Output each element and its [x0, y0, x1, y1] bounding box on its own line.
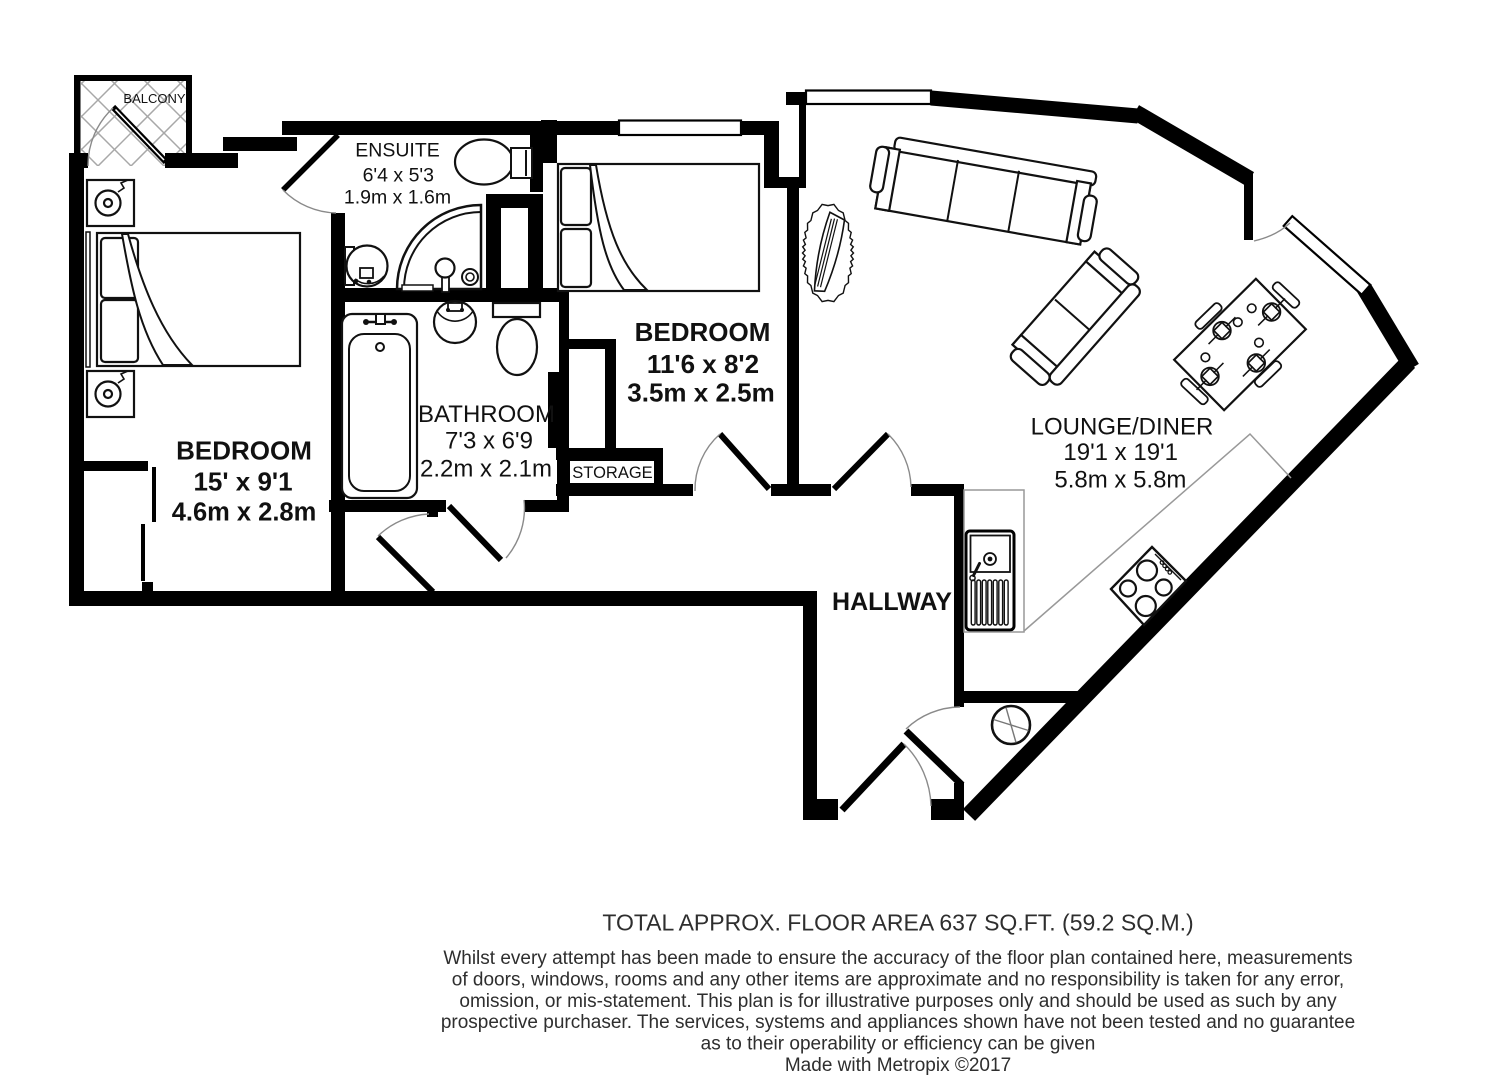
svg-text:4.6m x 2.8m: 4.6m x 2.8m	[172, 499, 317, 527]
svg-text:BATHROOM: BATHROOM	[418, 401, 555, 428]
svg-text:as to their operability or eff: as to their operability or efficiency ca…	[701, 1034, 1096, 1055]
svg-text:HALLWAY: HALLWAY	[832, 588, 952, 616]
svg-text:2.2m x 2.1m: 2.2m x 2.1m	[420, 456, 552, 483]
svg-text:5.8m x 5.8m: 5.8m x 5.8m	[1054, 466, 1186, 493]
svg-text:Whilst every attempt has been: Whilst every attempt has been made to en…	[443, 948, 1352, 969]
svg-text:of doors, windows, rooms and a: of doors, windows, rooms and any other i…	[452, 969, 1344, 990]
svg-text:ENSUITE: ENSUITE	[355, 140, 440, 162]
svg-text:LOUNGE/DINER: LOUNGE/DINER	[1031, 413, 1214, 440]
svg-text:Made with Metropix ©2017: Made with Metropix ©2017	[785, 1055, 1011, 1076]
svg-text:prospective purchaser. The ser: prospective purchaser. The services, sys…	[441, 1012, 1355, 1033]
svg-text:BALCONY: BALCONY	[123, 91, 185, 106]
svg-text:omission, or mis-statement. Th: omission, or mis-statement. This plan is…	[459, 991, 1337, 1012]
svg-text:BEDROOM: BEDROOM	[176, 436, 312, 466]
svg-text:STORAGE: STORAGE	[572, 464, 652, 482]
svg-text:19'1 x 19'1: 19'1 x 19'1	[1063, 439, 1178, 466]
svg-text:BEDROOM: BEDROOM	[635, 317, 771, 347]
svg-text:TOTAL APPROX. FLOOR AREA 637 S: TOTAL APPROX. FLOOR AREA 637 SQ.FT. (59.…	[602, 910, 1193, 936]
svg-text:11'6 x 8'2: 11'6 x 8'2	[647, 349, 759, 379]
svg-text:7'3 x 6'9: 7'3 x 6'9	[445, 428, 533, 455]
svg-text:3.5m x 2.5m: 3.5m x 2.5m	[627, 378, 774, 408]
svg-text:1.9m x 1.6m: 1.9m x 1.6m	[344, 186, 451, 208]
svg-text:15' x 9'1: 15' x 9'1	[193, 467, 292, 497]
svg-text:6'4 x 5'3: 6'4 x 5'3	[363, 165, 434, 187]
